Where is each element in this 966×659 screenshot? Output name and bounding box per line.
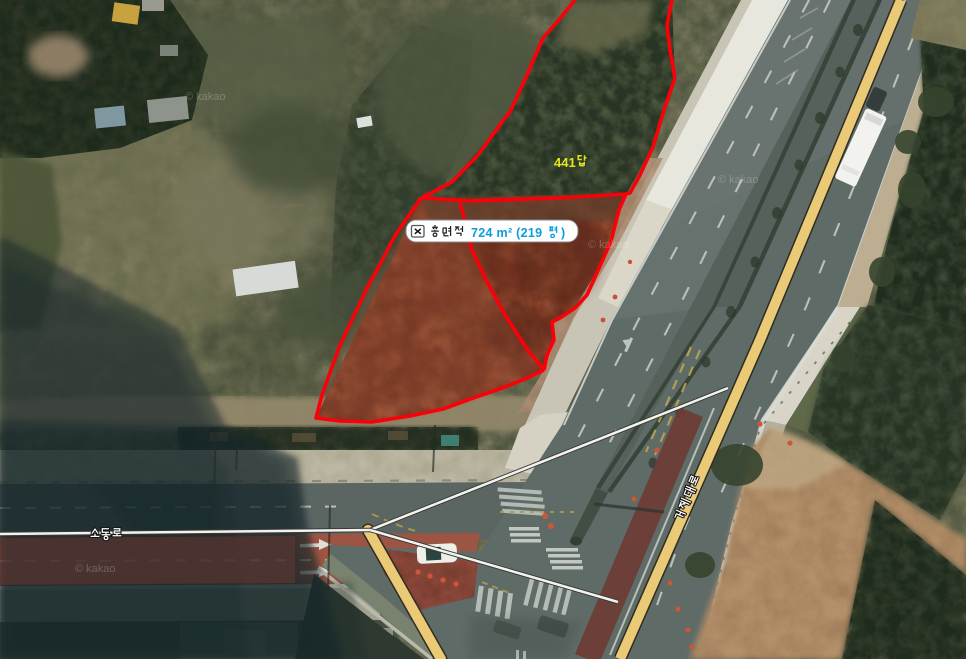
- svg-text:© kakao: © kakao: [185, 91, 226, 103]
- svg-text:441: 441: [554, 155, 576, 170]
- svg-text:): ): [561, 226, 565, 240]
- svg-text:724 m² (219: 724 m² (219: [471, 226, 542, 240]
- svg-text:© kakao: © kakao: [588, 239, 629, 251]
- svg-text:© kakao: © kakao: [75, 563, 116, 575]
- svg-text:© kakao: © kakao: [718, 174, 759, 186]
